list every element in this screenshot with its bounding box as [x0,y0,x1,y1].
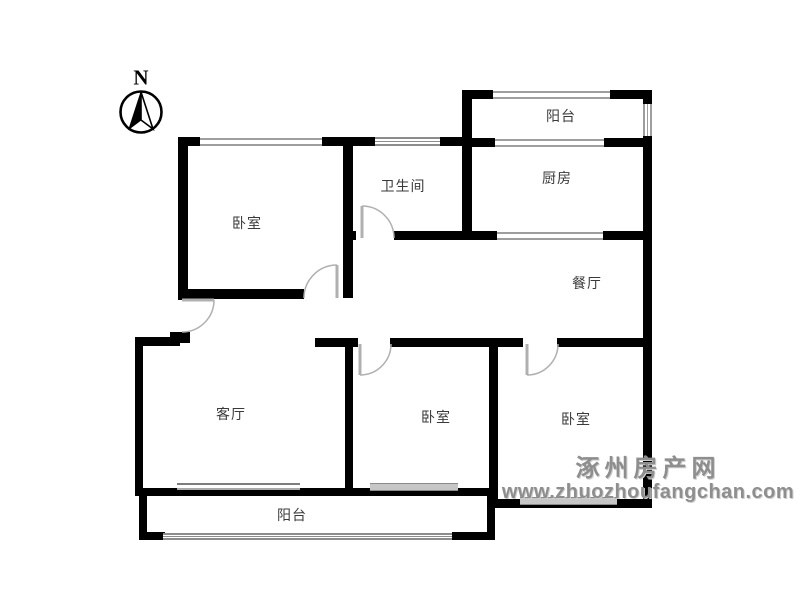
room-label-bathroom: 卫生间 [381,176,426,196]
room-label-dining: 餐厅 [572,273,602,293]
room-label-living: 客厅 [216,404,246,424]
room-label-kitchen: 厨房 [542,168,572,188]
room-label-bedroom-bottom-middle: 卧室 [421,407,451,427]
compass-north-label: N [133,66,148,91]
north-compass-icon [0,0,800,600]
room-label-bedroom-bottom-right: 卧室 [561,409,591,429]
room-label-balcony-top: 阳台 [546,106,576,126]
floor-plan: N 阳台 厨房 卫生间 卧室 餐厅 客厅 卧室 卧室 阳台 涿州房产网 www.… [0,0,800,600]
room-label-bedroom-top-left: 卧室 [232,213,262,233]
room-label-balcony-bottom: 阳台 [277,505,307,525]
